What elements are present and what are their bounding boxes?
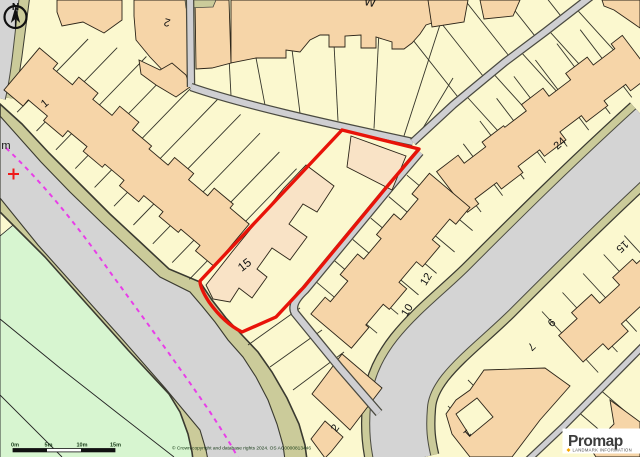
svg-text:5m: 5m	[45, 443, 53, 449]
svg-text:m: m	[1, 140, 10, 152]
svg-text:© Crown copyright and database: © Crown copyright and database rights 20…	[172, 445, 311, 452]
svg-text:10m: 10m	[76, 443, 87, 449]
svg-text:N: N	[12, 2, 19, 13]
svg-text:0m: 0m	[11, 443, 19, 449]
svg-text:LANDMARK INFORMATION: LANDMARK INFORMATION	[573, 448, 632, 453]
svg-text:15m: 15m	[110, 443, 121, 449]
